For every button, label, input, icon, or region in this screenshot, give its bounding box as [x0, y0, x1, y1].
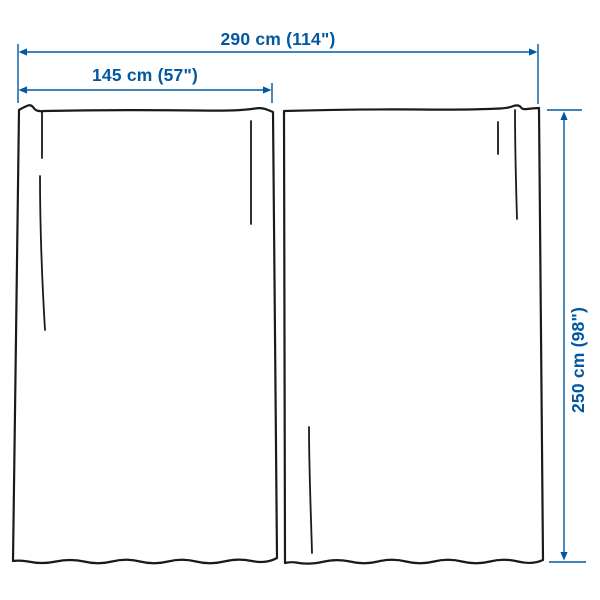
product-dimension-diagram: 290 cm (114") 145 cm (57") 250 cm (98")	[0, 0, 600, 600]
panel-height-label: 250 cm (98")	[568, 307, 588, 413]
total-width-label: 290 cm (114")	[221, 29, 336, 49]
right-panel-outline	[284, 105, 543, 563]
panel-width-label: 145 cm (57")	[92, 65, 198, 85]
left-curtain-panel	[13, 105, 277, 563]
arrow-left-icon	[19, 48, 28, 55]
arrow-right-icon	[529, 48, 538, 55]
left-panel-outline	[13, 105, 277, 563]
arrow-left-icon	[19, 86, 28, 93]
diagram-canvas: 290 cm (114") 145 cm (57") 250 cm (98")	[0, 0, 600, 600]
arrow-up-icon	[560, 112, 567, 121]
arrow-down-icon	[560, 552, 567, 561]
arrow-right-icon	[263, 86, 272, 93]
right-curtain-panel	[284, 105, 543, 563]
